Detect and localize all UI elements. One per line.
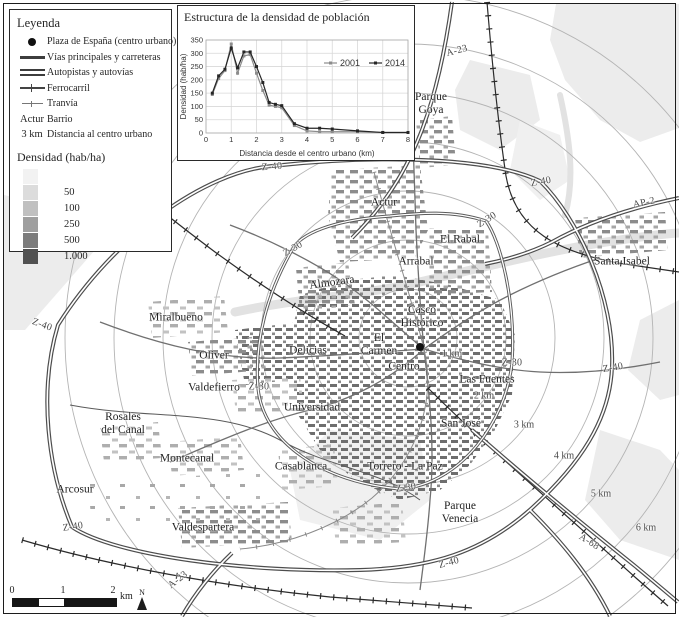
scale-bar-rule [12,598,117,607]
legend-item: Plaza de España (centro urbano) [17,34,164,50]
marker-2001 [230,42,233,45]
marker-2001 [268,104,271,107]
marker-2014 [356,129,359,132]
density-scale-title: Densidad (hab/ha) [17,150,164,165]
marker-2014 [318,127,321,130]
marker-2014 [407,131,410,134]
legend-item-label: Plaza de España (centro urbano) [47,36,176,47]
marker-2014 [249,50,252,53]
highway-icon [20,69,45,76]
density-scale: 501002505001.000 [17,169,164,264]
density-scale-row [23,169,164,184]
marker-2014 [306,127,309,130]
x-tick: 0 [204,135,208,144]
legend-label-2014: 2014 [385,58,405,68]
density-swatch-label: 500 [64,235,80,246]
railway-icon [20,87,45,89]
density-scale-row: 1.000 [23,249,164,264]
marker-2014 [331,128,334,131]
scale-unit: km [120,591,133,602]
marker-2014 [293,122,296,125]
density-swatch-0 [23,169,38,184]
marker-2001 [236,72,239,75]
north-arrow-icon [137,597,147,610]
marker-2014 [217,74,220,77]
tram-icon [22,103,43,104]
map-figure: Parque GoyaA-23Z-40Z-40AP-2Z-30ActurEl R… [0,0,679,617]
marker-2014 [211,92,214,95]
x-tick: 5 [330,135,334,144]
marker-2014 [230,46,233,49]
y-tick: 0 [199,129,203,138]
density-swatch-1 [23,185,38,200]
marker-2014 [223,68,226,71]
marker-2014 [261,81,264,84]
marker-2001 [255,72,258,75]
marker-2014 [381,131,384,134]
plaza-espana-marker [416,343,424,351]
legend-marker-2001 [329,62,332,65]
y-tick: 300 [190,49,203,58]
marker-2014 [280,104,283,107]
legend-item: Ferrocarril [17,81,164,97]
density-swatch-4 [23,233,38,248]
legend-item-label: Barrio [47,114,73,125]
x-tick: 6 [355,135,359,144]
marker-2014 [274,103,277,106]
marker-2014 [236,66,239,69]
barrio-sample-text: Actur [20,114,44,125]
density-swatch-label: 50 [64,187,75,198]
x-tick: 8 [406,135,410,144]
density-swatch-label: 100 [64,203,80,214]
x-axis-label: Distancia desde el centro urbano (km) [239,149,375,158]
x-tick: 1 [229,135,233,144]
y-tick: 150 [190,89,203,98]
urban-fabric [88,116,668,548]
legend-item-label: Ferrocarril [47,83,90,94]
scale-tick: 1 [61,585,66,596]
y-tick: 350 [190,36,203,45]
y-tick: 200 [190,75,203,84]
y-tick: 50 [195,115,203,124]
marker-2014 [255,65,258,68]
density-structure-panel: Estructura de la densidad de población 0… [177,5,415,161]
legend-item-label: Autopistas y autovías [47,67,133,78]
density-swatch-2 [23,201,38,216]
north-label: N [134,588,150,597]
density-structure-chart: 05010015020025030035001234567820012014De… [178,30,414,162]
legend-item: Vías principales y carreteras [17,50,164,66]
legend-title: Leyenda [17,16,164,31]
legend-item: Actur Barrio [17,112,164,128]
x-tick: 2 [254,135,258,144]
legend-item: 3 km Distancia al centro urbano [17,127,164,143]
marker-2014 [242,50,245,53]
chart-title: Estructura de la densidad de población [178,6,414,30]
main-road-icon [20,56,45,59]
density-scale-row: 250 [23,217,164,232]
density-scale-row: 500 [23,233,164,248]
density-scale-row: 50 [23,185,164,200]
scale-tick: 0 [10,585,15,596]
marker-2001 [261,89,264,92]
density-swatch-3 [23,217,38,232]
distance-sample-text: 3 km [21,129,42,140]
legend-panel: Leyenda Plaza de España (centro urbano) … [9,9,172,252]
marker-2001 [331,130,334,133]
legend-item: Tranvía [17,96,164,112]
x-tick: 3 [280,135,284,144]
north-arrow: N [134,588,150,610]
density-swatch-5 [23,249,38,264]
marker-2001 [318,130,321,133]
legend-marker-2014 [374,62,377,65]
marker-2014 [268,101,271,104]
legend-item-label: Tranvía [47,98,78,109]
x-tick: 7 [381,135,385,144]
legend-item-label: Distancia al centro urbano [47,129,152,140]
legend-item-label: Vías principales y carreteras [47,52,161,63]
y-tick: 100 [190,102,203,111]
legend-label-2001: 2001 [340,58,360,68]
marker-2001 [306,129,309,132]
y-axis-label: Densidad (hab/ha) [179,53,188,119]
density-swatch-label: 250 [64,219,80,230]
x-tick: 4 [305,135,309,144]
density-scale-row: 100 [23,201,164,216]
y-tick: 250 [190,62,203,71]
scale-tick: 2 [111,585,116,596]
density-swatch-label: 1.000 [64,251,88,262]
legend-item: Autopistas y autovías [17,65,164,81]
center-dot-icon [28,38,36,46]
